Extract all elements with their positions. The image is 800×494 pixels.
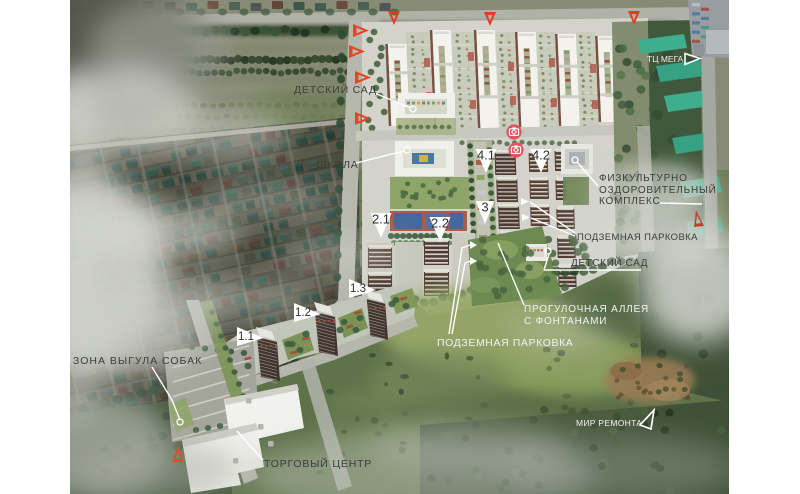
svg-text:ШКОЛА: ШКОЛА xyxy=(317,159,359,171)
svg-text:ПОДЗЕМНАЯ ПАРКОВКА: ПОДЗЕМНАЯ ПАРКОВКА xyxy=(577,232,698,243)
svg-text:ОЗДОРОВИТЕЛЬНЫЙ: ОЗДОРОВИТЕЛЬНЫЙ xyxy=(599,183,717,196)
svg-text:1.3: 1.3 xyxy=(350,283,366,295)
svg-text:2.1: 2.1 xyxy=(372,212,390,227)
svg-text:4.1: 4.1 xyxy=(477,148,495,163)
svg-text:ЗОНА ВЫГУЛА СОБАК: ЗОНА ВЫГУЛА СОБАК xyxy=(73,355,202,367)
svg-text:ДЕТСКИЙ САД: ДЕТСКИЙ САД xyxy=(294,83,377,96)
svg-text:1.1: 1.1 xyxy=(238,331,254,343)
svg-text:МИР РЕМОНТА: МИР РЕМОНТА xyxy=(576,418,642,428)
svg-text:4.2: 4.2 xyxy=(532,148,550,163)
svg-text:ФИЗКУЛЬТУРНО: ФИЗКУЛЬТУРНО xyxy=(599,173,688,184)
svg-text:2.2: 2.2 xyxy=(431,216,449,231)
svg-text:ТЦ МЕГА: ТЦ МЕГА xyxy=(647,54,684,64)
svg-text:ДЕТСКИЙ САД: ДЕТСКИЙ САД xyxy=(571,256,648,269)
svg-text:ТОРГОВЫЙ ЦЕНТР: ТОРГОВЫЙ ЦЕНТР xyxy=(264,457,372,470)
svg-text:3: 3 xyxy=(481,200,488,215)
svg-text:ПОДЗЕМНАЯ ПАРКОВКА: ПОДЗЕМНАЯ ПАРКОВКА xyxy=(437,337,573,349)
svg-text:КОМПЛЕКС: КОМПЛЕКС xyxy=(599,196,661,207)
svg-text:1.2: 1.2 xyxy=(295,307,311,319)
svg-text:ПРОГУЛОЧНАЯ АЛЛЕЯ: ПРОГУЛОЧНАЯ АЛЛЕЯ xyxy=(524,304,649,315)
svg-text:С ФОНТАНАМИ: С ФОНТАНАМИ xyxy=(524,316,607,327)
